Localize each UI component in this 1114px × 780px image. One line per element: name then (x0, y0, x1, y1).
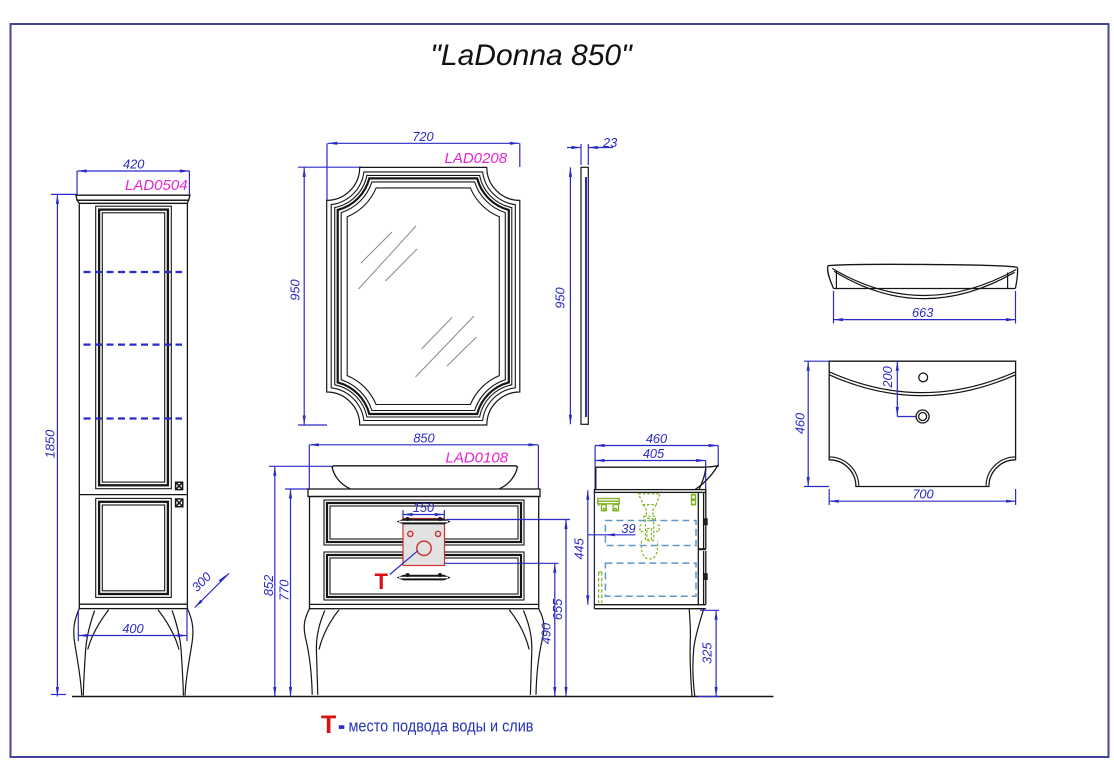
svg-text:200: 200 (880, 365, 895, 388)
svg-text:460: 460 (792, 412, 807, 434)
svg-text:место подвода воды и слив: место подвода воды и слив (349, 718, 534, 736)
svg-text:420: 420 (123, 157, 145, 172)
svg-text:23: 23 (602, 135, 617, 150)
svg-text:Т: Т (321, 711, 336, 739)
svg-text:770: 770 (277, 579, 292, 601)
svg-text:460: 460 (646, 431, 668, 446)
svg-text:39: 39 (621, 521, 635, 536)
svg-text:"LaDonna 850": "LaDonna 850" (430, 39, 633, 72)
svg-text:490: 490 (538, 622, 553, 644)
svg-text:150: 150 (413, 500, 435, 515)
svg-text:655: 655 (550, 598, 565, 620)
svg-text:700: 700 (912, 487, 934, 502)
svg-text:950: 950 (288, 278, 303, 300)
svg-text:850: 850 (413, 430, 435, 445)
svg-text:LAD0108: LAD0108 (446, 449, 509, 466)
svg-text:445: 445 (571, 537, 586, 559)
svg-text:LAD0504: LAD0504 (125, 177, 188, 194)
svg-text:950: 950 (553, 286, 568, 308)
svg-text:LAD0208: LAD0208 (445, 150, 508, 167)
svg-text:405: 405 (643, 446, 665, 461)
svg-text:1850: 1850 (43, 429, 58, 458)
svg-text:325: 325 (700, 642, 715, 664)
svg-text:720: 720 (412, 129, 434, 144)
svg-text:852: 852 (261, 575, 276, 596)
svg-text:400: 400 (122, 621, 144, 636)
svg-text:Т: Т (375, 569, 389, 594)
svg-text:663: 663 (912, 305, 933, 320)
